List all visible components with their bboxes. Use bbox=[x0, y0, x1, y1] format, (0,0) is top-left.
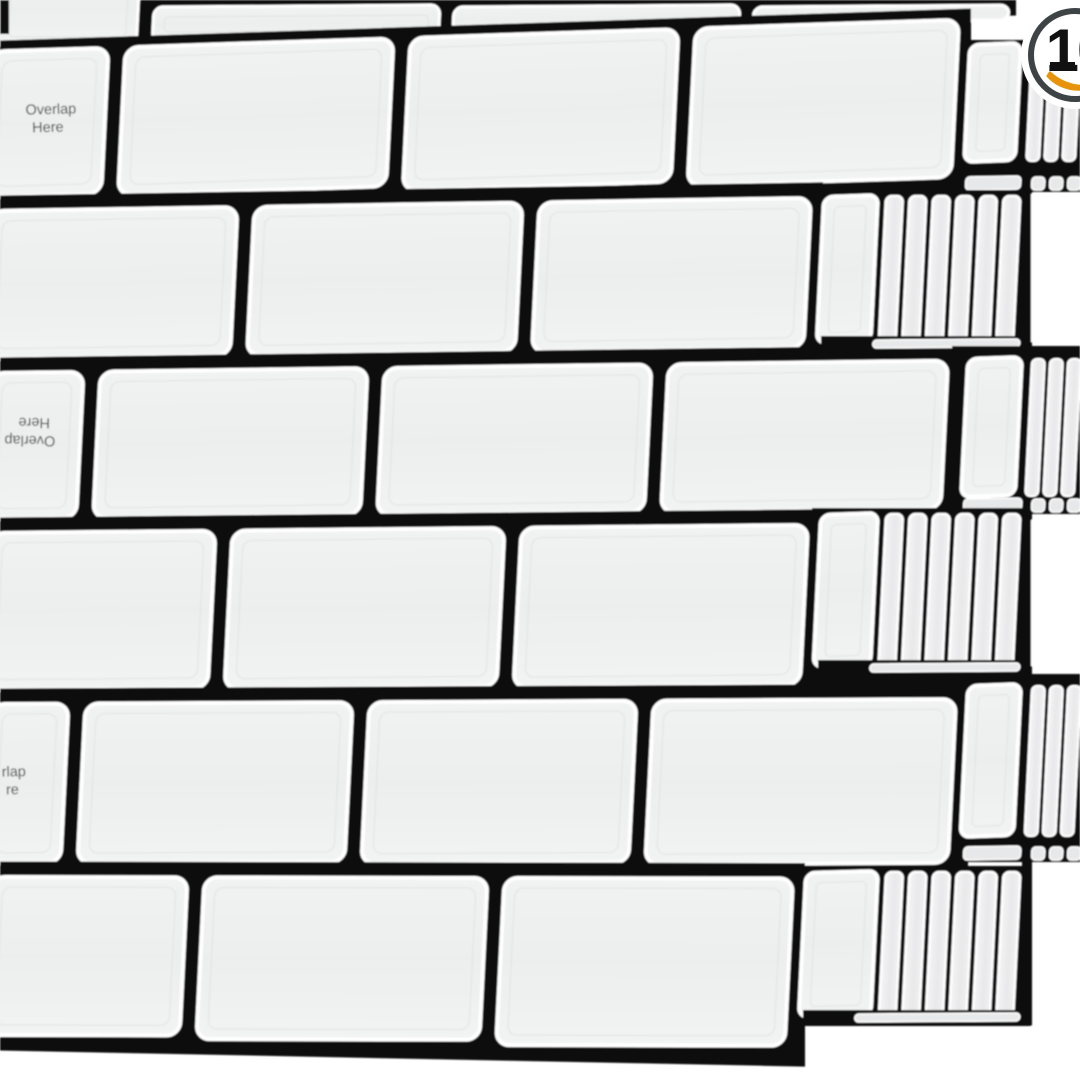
svg-text:Here: Here bbox=[18, 414, 50, 431]
svg-text:Here: Here bbox=[32, 120, 64, 137]
svg-text:rlap: rlap bbox=[2, 764, 27, 781]
svg-text:Overlap: Overlap bbox=[4, 432, 55, 449]
svg-text:re: re bbox=[6, 782, 19, 798]
svg-text:Overlap: Overlap bbox=[25, 101, 76, 118]
